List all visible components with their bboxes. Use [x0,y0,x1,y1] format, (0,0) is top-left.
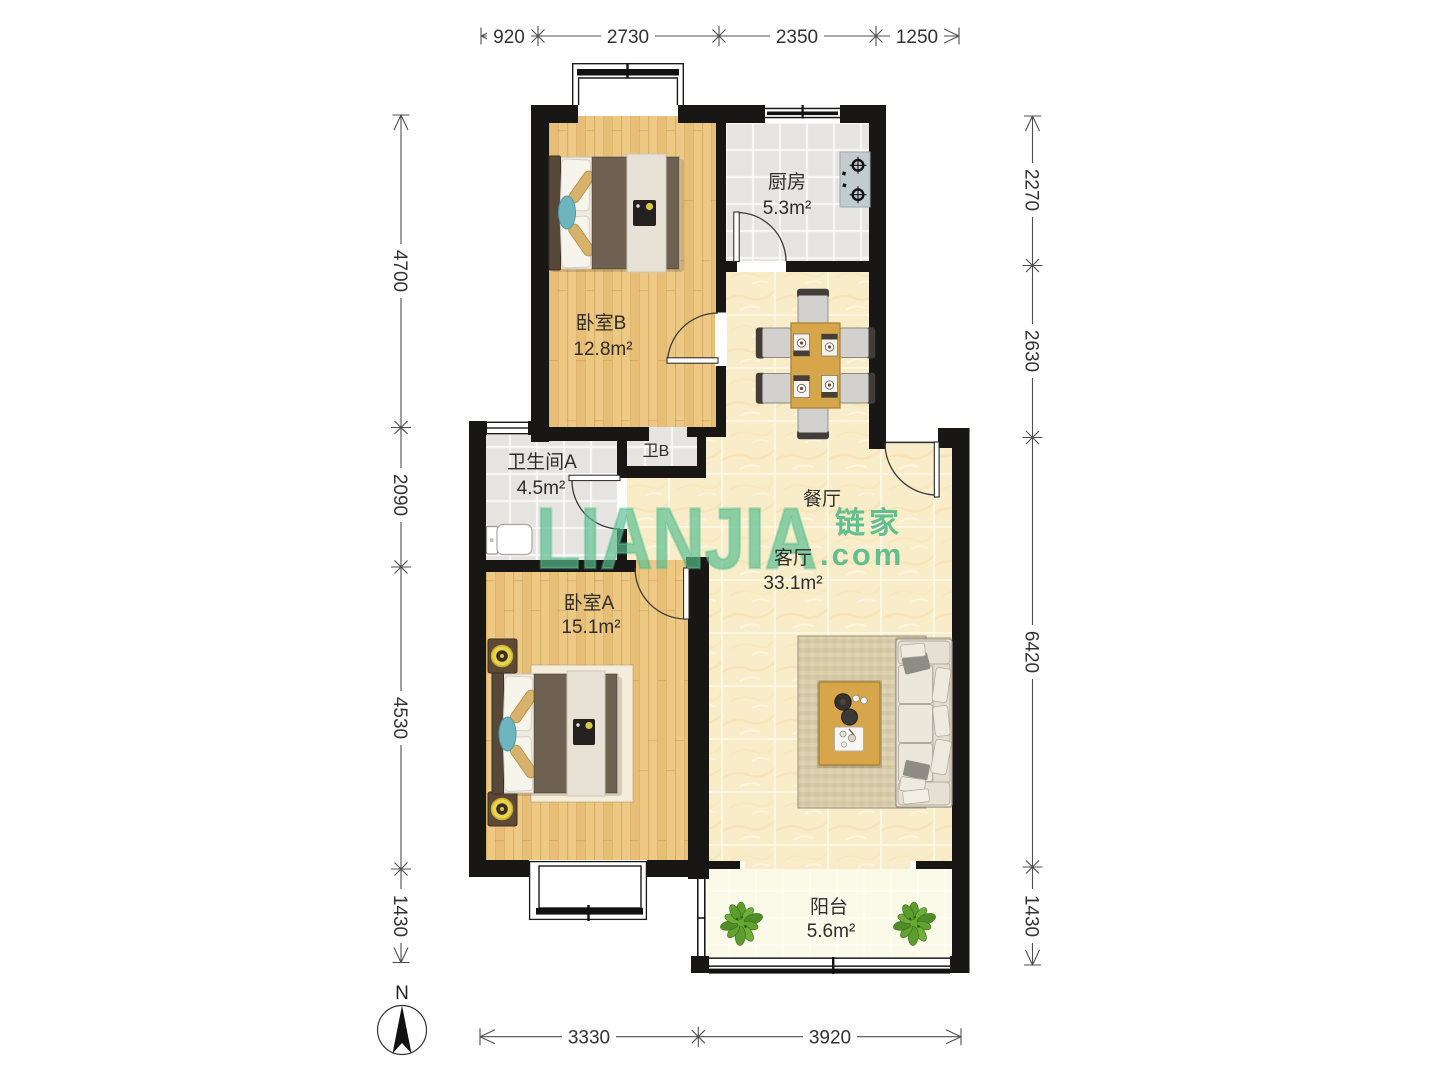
svg-text:卧室A: 卧室A [564,592,615,614]
svg-text:3330: 3330 [568,1028,610,1049]
svg-text:2270: 2270 [1021,169,1042,211]
svg-text:链家: 链家 [835,506,903,540]
svg-text:2730: 2730 [607,27,649,48]
svg-text:1250: 1250 [896,27,938,48]
svg-text:5.6m²: 5.6m² [807,921,856,942]
svg-text:4700: 4700 [389,250,410,292]
svg-text:.com: .com [820,537,904,572]
svg-text:客厅: 客厅 [774,547,812,569]
svg-text:2350: 2350 [776,27,818,48]
svg-text:卫生间A: 卫生间A [507,451,577,473]
svg-text:6420: 6420 [1021,631,1042,673]
svg-text:2090: 2090 [389,474,410,516]
svg-text:15.1m²: 15.1m² [561,617,620,638]
svg-text:餐厅: 餐厅 [803,488,841,510]
svg-text:1430: 1430 [1021,895,1042,937]
svg-text:920: 920 [493,27,525,48]
svg-text:卧室B: 卧室B [576,312,627,334]
svg-text:N: N [395,983,409,1004]
svg-text:1430: 1430 [389,895,410,937]
svg-text:4530: 4530 [389,697,410,739]
svg-text:33.1m²: 33.1m² [763,573,822,594]
svg-text:阳台: 阳台 [810,896,848,918]
svg-text:卫B: 卫B [643,443,670,460]
svg-text:3920: 3920 [809,1028,851,1049]
svg-text:12.8m²: 12.8m² [573,339,632,360]
svg-text:厨房: 厨房 [768,171,806,193]
svg-text:4.5m²: 4.5m² [517,478,566,499]
svg-text:2630: 2630 [1021,330,1042,372]
svg-text:5.3m²: 5.3m² [763,198,812,219]
